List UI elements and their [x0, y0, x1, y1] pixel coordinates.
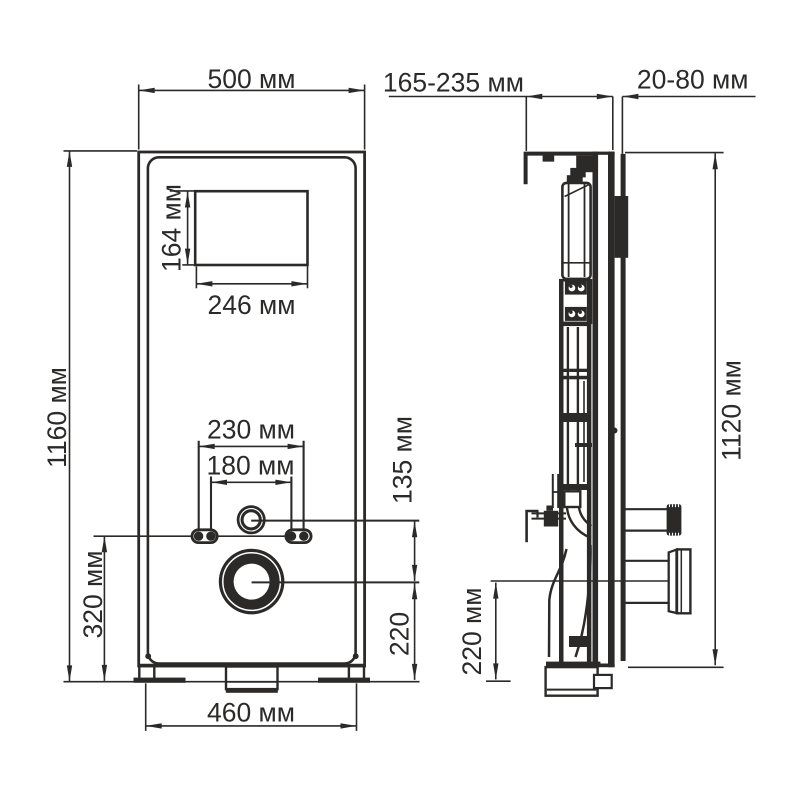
- svg-text:500 мм: 500 мм: [207, 64, 295, 94]
- svg-text:460 мм: 460 мм: [207, 698, 295, 728]
- svg-text:180 мм: 180 мм: [206, 451, 294, 481]
- svg-text:220: 220: [385, 612, 415, 656]
- svg-text:1160 мм: 1160 мм: [42, 367, 72, 468]
- svg-text:246 мм: 246 мм: [207, 290, 295, 320]
- svg-text:1120 мм: 1120 мм: [717, 360, 747, 461]
- svg-text:320 мм: 320 мм: [78, 550, 108, 638]
- svg-text:164 мм: 164 мм: [157, 184, 187, 272]
- svg-text:165-235 мм: 165-235 мм: [383, 68, 524, 98]
- svg-text:230 мм: 230 мм: [207, 414, 295, 444]
- svg-text:20-80 мм: 20-80 мм: [637, 65, 749, 95]
- svg-text:220 мм: 220 мм: [457, 587, 487, 675]
- svg-text:135 мм: 135 мм: [388, 416, 418, 504]
